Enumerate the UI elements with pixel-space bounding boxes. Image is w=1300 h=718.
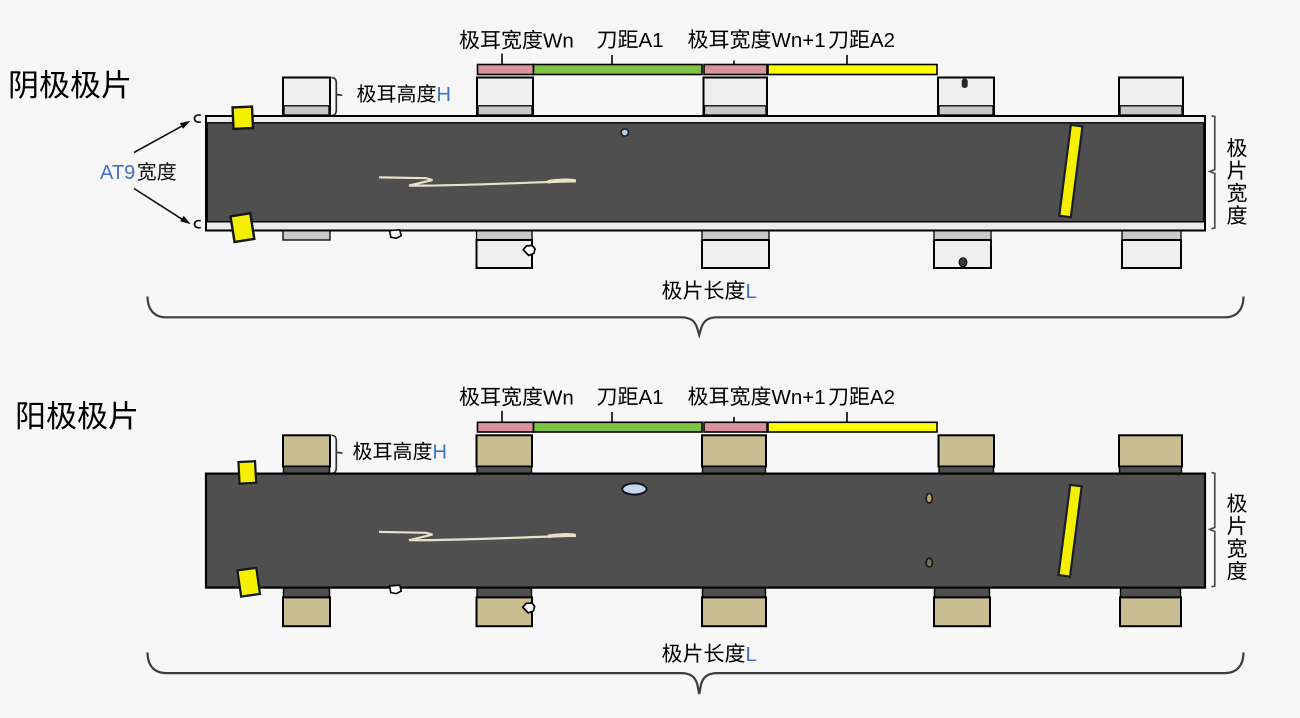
svg-text:A1: A1 — [639, 29, 664, 52]
svg-text:A2: A2 — [870, 386, 895, 409]
svg-text:AT9: AT9 — [100, 162, 135, 184]
svg-text:A2: A2 — [870, 29, 895, 52]
svg-text:A1: A1 — [639, 386, 664, 409]
svg-text:H: H — [437, 84, 451, 106]
svg-text:L: L — [746, 643, 757, 666]
svg-text:Wn+1: Wn+1 — [772, 29, 826, 52]
svg-text:L: L — [746, 280, 757, 303]
svg-text:Wn: Wn — [543, 386, 574, 409]
svg-text:H: H — [433, 442, 447, 464]
svg-text:Wn: Wn — [543, 30, 574, 53]
svg-text:Wn+1: Wn+1 — [772, 386, 826, 409]
